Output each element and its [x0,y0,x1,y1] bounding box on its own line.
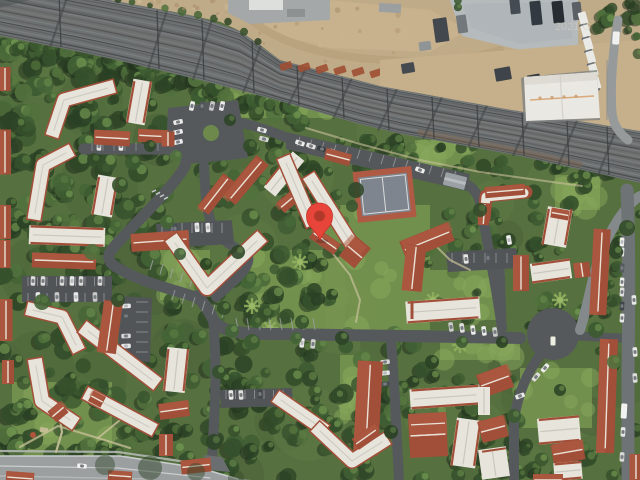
svg-text:2021 G: 2021 G [555,21,591,33]
